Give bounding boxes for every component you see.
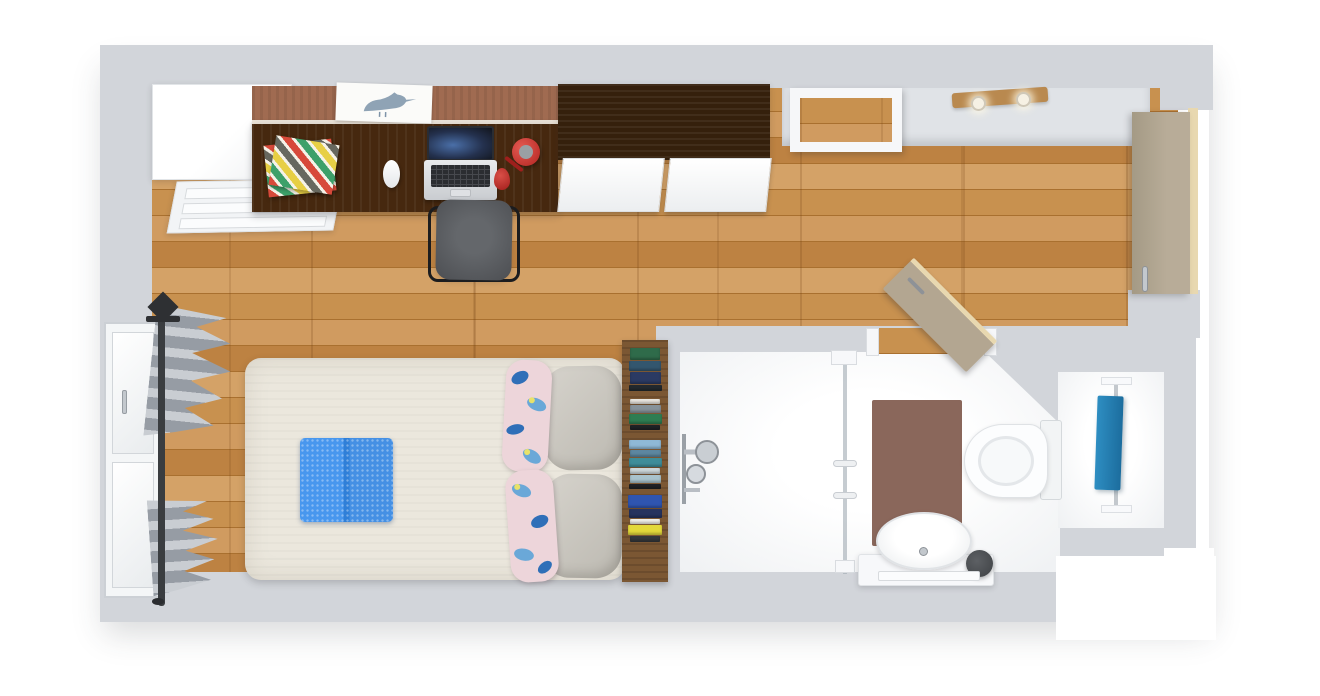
wardrobe-door-left	[557, 158, 665, 212]
floral-pillow-top	[501, 359, 553, 473]
dark-wardrobe	[558, 84, 770, 160]
washbasin	[876, 512, 972, 570]
desk-lamp-shade-inner	[519, 145, 533, 159]
book	[630, 425, 660, 430]
desk-lamp-base	[494, 168, 510, 190]
partition-mount-top	[831, 350, 857, 365]
window-panel-bottom	[112, 462, 154, 588]
shower-fixture	[674, 430, 720, 508]
floor-plan-canvas	[0, 0, 1320, 696]
partition-mount-bottom	[835, 560, 855, 573]
toilet-seat	[978, 436, 1034, 486]
floral-pattern	[504, 468, 560, 583]
wall-right-top	[1160, 86, 1213, 110]
book	[630, 399, 660, 404]
drawer-3	[178, 216, 327, 230]
bird-art-print	[335, 82, 432, 123]
book	[628, 525, 662, 535]
book	[630, 475, 661, 483]
window-handle-top	[122, 390, 127, 414]
book	[630, 348, 660, 360]
outside-cut-right	[1164, 548, 1214, 608]
book	[629, 509, 662, 518]
book	[629, 484, 661, 489]
heron-illustration	[349, 87, 418, 119]
door-stop	[152, 598, 164, 605]
rail-bracket-top	[1101, 377, 1132, 385]
partition-hinge-2	[833, 492, 857, 499]
book	[630, 372, 661, 384]
curtain-rod	[158, 302, 165, 606]
book	[629, 385, 662, 391]
gray-pillow-top	[543, 365, 623, 470]
book-stack	[627, 348, 663, 576]
bath-towel	[1094, 396, 1123, 491]
wall-top	[100, 45, 1213, 88]
book	[630, 405, 661, 413]
laptop-screen	[427, 126, 494, 161]
door-post-left	[866, 328, 879, 356]
open-shelf	[790, 88, 902, 152]
book	[629, 361, 661, 371]
wardrobe-door-right	[664, 158, 772, 212]
partition-hinge-1	[833, 460, 857, 467]
faucet	[919, 547, 928, 556]
computer-mouse	[383, 160, 400, 188]
laptop	[424, 126, 498, 200]
book	[629, 440, 661, 449]
book	[630, 450, 661, 457]
entrance-door-handle	[1142, 266, 1148, 292]
rail-bracket-bottom	[1101, 505, 1132, 513]
laptop-trackpad	[450, 189, 471, 197]
bookshelf	[622, 340, 668, 582]
book	[630, 536, 660, 542]
office-chair-seat	[435, 199, 512, 280]
book	[630, 519, 660, 524]
book	[630, 468, 660, 474]
curtain-rod-crossbar	[146, 316, 180, 322]
laptop-keyboard	[431, 165, 490, 187]
blanket-texture	[300, 438, 393, 522]
spotlight-bulb-2	[1016, 92, 1031, 107]
hand-towel	[878, 571, 980, 581]
floral-pillow-bottom	[504, 468, 560, 583]
floral-pattern	[501, 359, 553, 473]
entrance-door-panel	[1132, 112, 1190, 294]
book	[629, 414, 662, 424]
book	[629, 458, 662, 467]
notebooks-stack-top	[268, 135, 339, 194]
spotlight-bulb-1	[971, 96, 986, 111]
book	[628, 495, 662, 508]
